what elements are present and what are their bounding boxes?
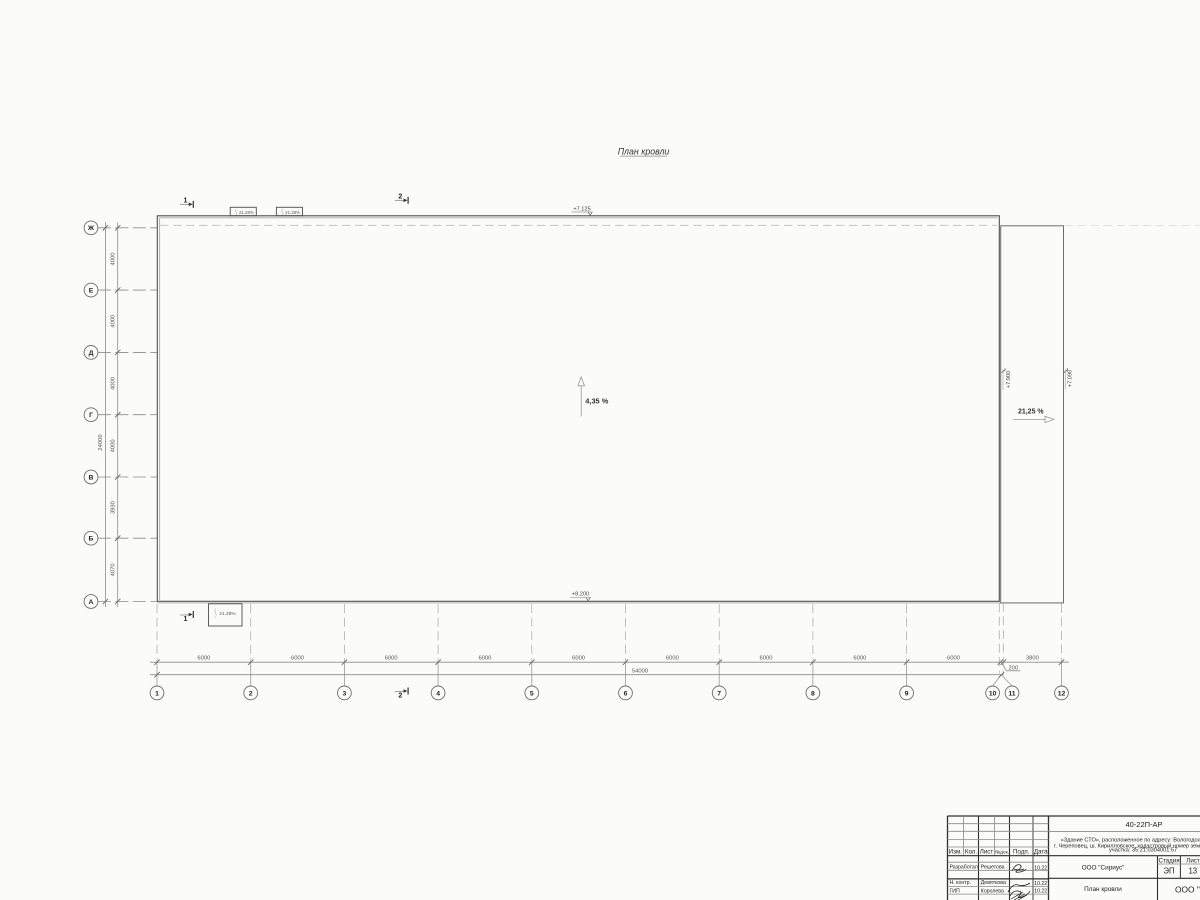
svg-text:Лист: Лист [980, 849, 994, 856]
svg-text:6000: 6000 [853, 656, 866, 662]
svg-text:1: 1 [155, 690, 159, 697]
svg-text:6: 6 [624, 690, 628, 697]
svg-text:Разработал: Разработал [950, 865, 978, 871]
svg-text:6000: 6000 [385, 656, 398, 662]
svg-text:10.22: 10.22 [1034, 888, 1047, 894]
svg-text:Лист: Лист [1186, 858, 1200, 865]
svg-text:В: В [89, 474, 94, 481]
svg-text:13: 13 [1188, 867, 1197, 876]
svg-text:2: 2 [249, 690, 253, 697]
svg-text:ГИП: ГИП [950, 888, 961, 894]
svg-text:Н. контр.: Н. контр. [950, 880, 971, 886]
svg-text:Кол.: Кол. [965, 849, 978, 856]
svg-text:54000: 54000 [632, 669, 648, 675]
svg-text:ООО "Сириус": ООО "Сириус" [1082, 865, 1125, 872]
svg-text:3930: 3930 [110, 501, 116, 514]
svg-text:3: 3 [343, 690, 347, 697]
svg-text:Ж: Ж [87, 225, 95, 232]
svg-text:6000: 6000 [197, 656, 210, 662]
svg-text:4,35 %: 4,35 % [585, 397, 608, 406]
svg-text:Подп.: Подп. [1013, 849, 1030, 856]
svg-text:ООО "Ак: ООО "Ак [1175, 884, 1200, 894]
svg-text:21.28%: 21.28% [239, 210, 254, 215]
svg-text:4: 4 [436, 690, 440, 697]
svg-text:2: 2 [398, 693, 402, 700]
svg-text:6000: 6000 [760, 656, 773, 662]
svg-text:11: 11 [1008, 690, 1015, 697]
svg-text:4070: 4070 [110, 563, 116, 576]
svg-text:6000: 6000 [291, 656, 304, 662]
svg-text:Стадия: Стадия [1158, 858, 1179, 865]
svg-text:200: 200 [1008, 665, 1018, 671]
svg-text:Г: Г [89, 412, 93, 419]
svg-text:№док.: №док. [995, 849, 1009, 855]
svg-text:1: 1 [184, 197, 188, 204]
svg-text:10.22: 10.22 [1034, 866, 1047, 872]
svg-text:1: 1 [184, 616, 188, 623]
svg-text:Решетова: Решетова [981, 865, 1005, 871]
svg-text:5: 5 [530, 690, 534, 697]
svg-text:+7.125: +7.125 [573, 206, 590, 212]
svg-text:10.22: 10.22 [1034, 881, 1047, 887]
svg-text:+7.090: +7.090 [1067, 370, 1073, 387]
svg-text:6000: 6000 [572, 656, 585, 662]
svg-text:Королева: Королева [981, 888, 1004, 894]
svg-text:Изм.: Изм. [949, 849, 963, 856]
svg-text:4000: 4000 [110, 315, 116, 328]
svg-text:24000: 24000 [98, 434, 104, 450]
svg-text:Дата: Дата [1034, 849, 1048, 856]
svg-text:6000: 6000 [478, 656, 491, 662]
svg-text:ЭП: ЭП [1163, 867, 1174, 876]
svg-text:8: 8 [811, 690, 815, 697]
svg-text:План кровли: План кровли [618, 147, 670, 157]
svg-text:21.28%: 21.28% [285, 210, 300, 215]
svg-text:участка: 35:21:0304001:57: участка: 35:21:0304001:57 [1109, 848, 1177, 854]
svg-text:План кровли: План кровли [1084, 886, 1122, 893]
svg-text:4000: 4000 [110, 253, 116, 266]
svg-text:4000: 4000 [110, 439, 116, 452]
svg-text:21.28%: 21.28% [219, 611, 236, 617]
svg-text:10: 10 [989, 690, 997, 697]
svg-text:3800: 3800 [1026, 656, 1039, 662]
svg-text:7: 7 [717, 690, 721, 697]
svg-text:12: 12 [1058, 690, 1066, 697]
svg-text:+7.900: +7.900 [1006, 371, 1012, 388]
svg-text:40-22П-АР: 40-22П-АР [1125, 820, 1162, 829]
svg-text:6000: 6000 [947, 656, 960, 662]
svg-text:+8.200: +8.200 [572, 592, 589, 598]
svg-text:Девяткова: Девяткова [981, 880, 1006, 886]
svg-text:Е: Е [89, 288, 94, 295]
svg-text:Б: Б [89, 536, 94, 543]
svg-text:21,25 %: 21,25 % [1018, 409, 1044, 416]
svg-text:4000: 4000 [110, 377, 116, 390]
svg-text:6000: 6000 [666, 656, 679, 662]
svg-text:Д: Д [89, 350, 94, 357]
svg-text:9: 9 [905, 690, 909, 697]
svg-text:А: А [89, 599, 94, 606]
svg-text:2: 2 [398, 193, 402, 200]
